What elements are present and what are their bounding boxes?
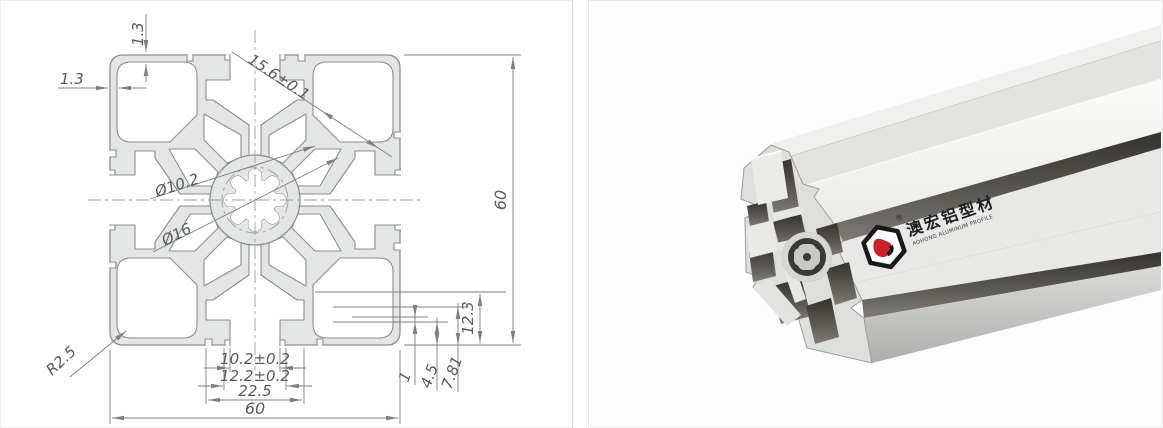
profile-photo: ® 澳宏铝型材 AOHONG ALUMINUM PROFILE — [589, 1, 1162, 427]
dim-cavity-width: 22.5 — [238, 382, 271, 400]
dim-slot-opening: 10.2±0.2 — [220, 350, 290, 368]
dim-screw-depth: 7.81 — [438, 354, 466, 392]
panel-divider-light — [586, 0, 587, 428]
cross-section-drawing: 1.3 1.3 15.6±0.1 Ø10.2 Ø16 60 60 12.3 7.… — [1, 1, 572, 427]
dim-step: 1 — [395, 369, 415, 384]
dim-slot-depth: 12.3 — [459, 301, 477, 334]
dim-wall-thickness-top: 1.3 — [129, 22, 147, 46]
dim-height: 60 — [491, 190, 510, 210]
drawing-panel: 1.3 1.3 15.6±0.1 Ø10.2 Ø16 60 60 12.3 7.… — [0, 0, 573, 428]
dim-wall-thickness-left: 1.3 — [60, 70, 84, 88]
aluminum-profile-product-image: 1.3 1.3 15.6±0.1 Ø10.2 Ø16 60 60 12.3 7.… — [0, 0, 1163, 428]
end-face-center-bore — [782, 232, 832, 282]
photo-panel: ® 澳宏铝型材 AOHONG ALUMINUM PROFILE — [588, 0, 1163, 428]
dim-width: 60 — [245, 399, 265, 418]
panel-divider — [572, 0, 573, 428]
